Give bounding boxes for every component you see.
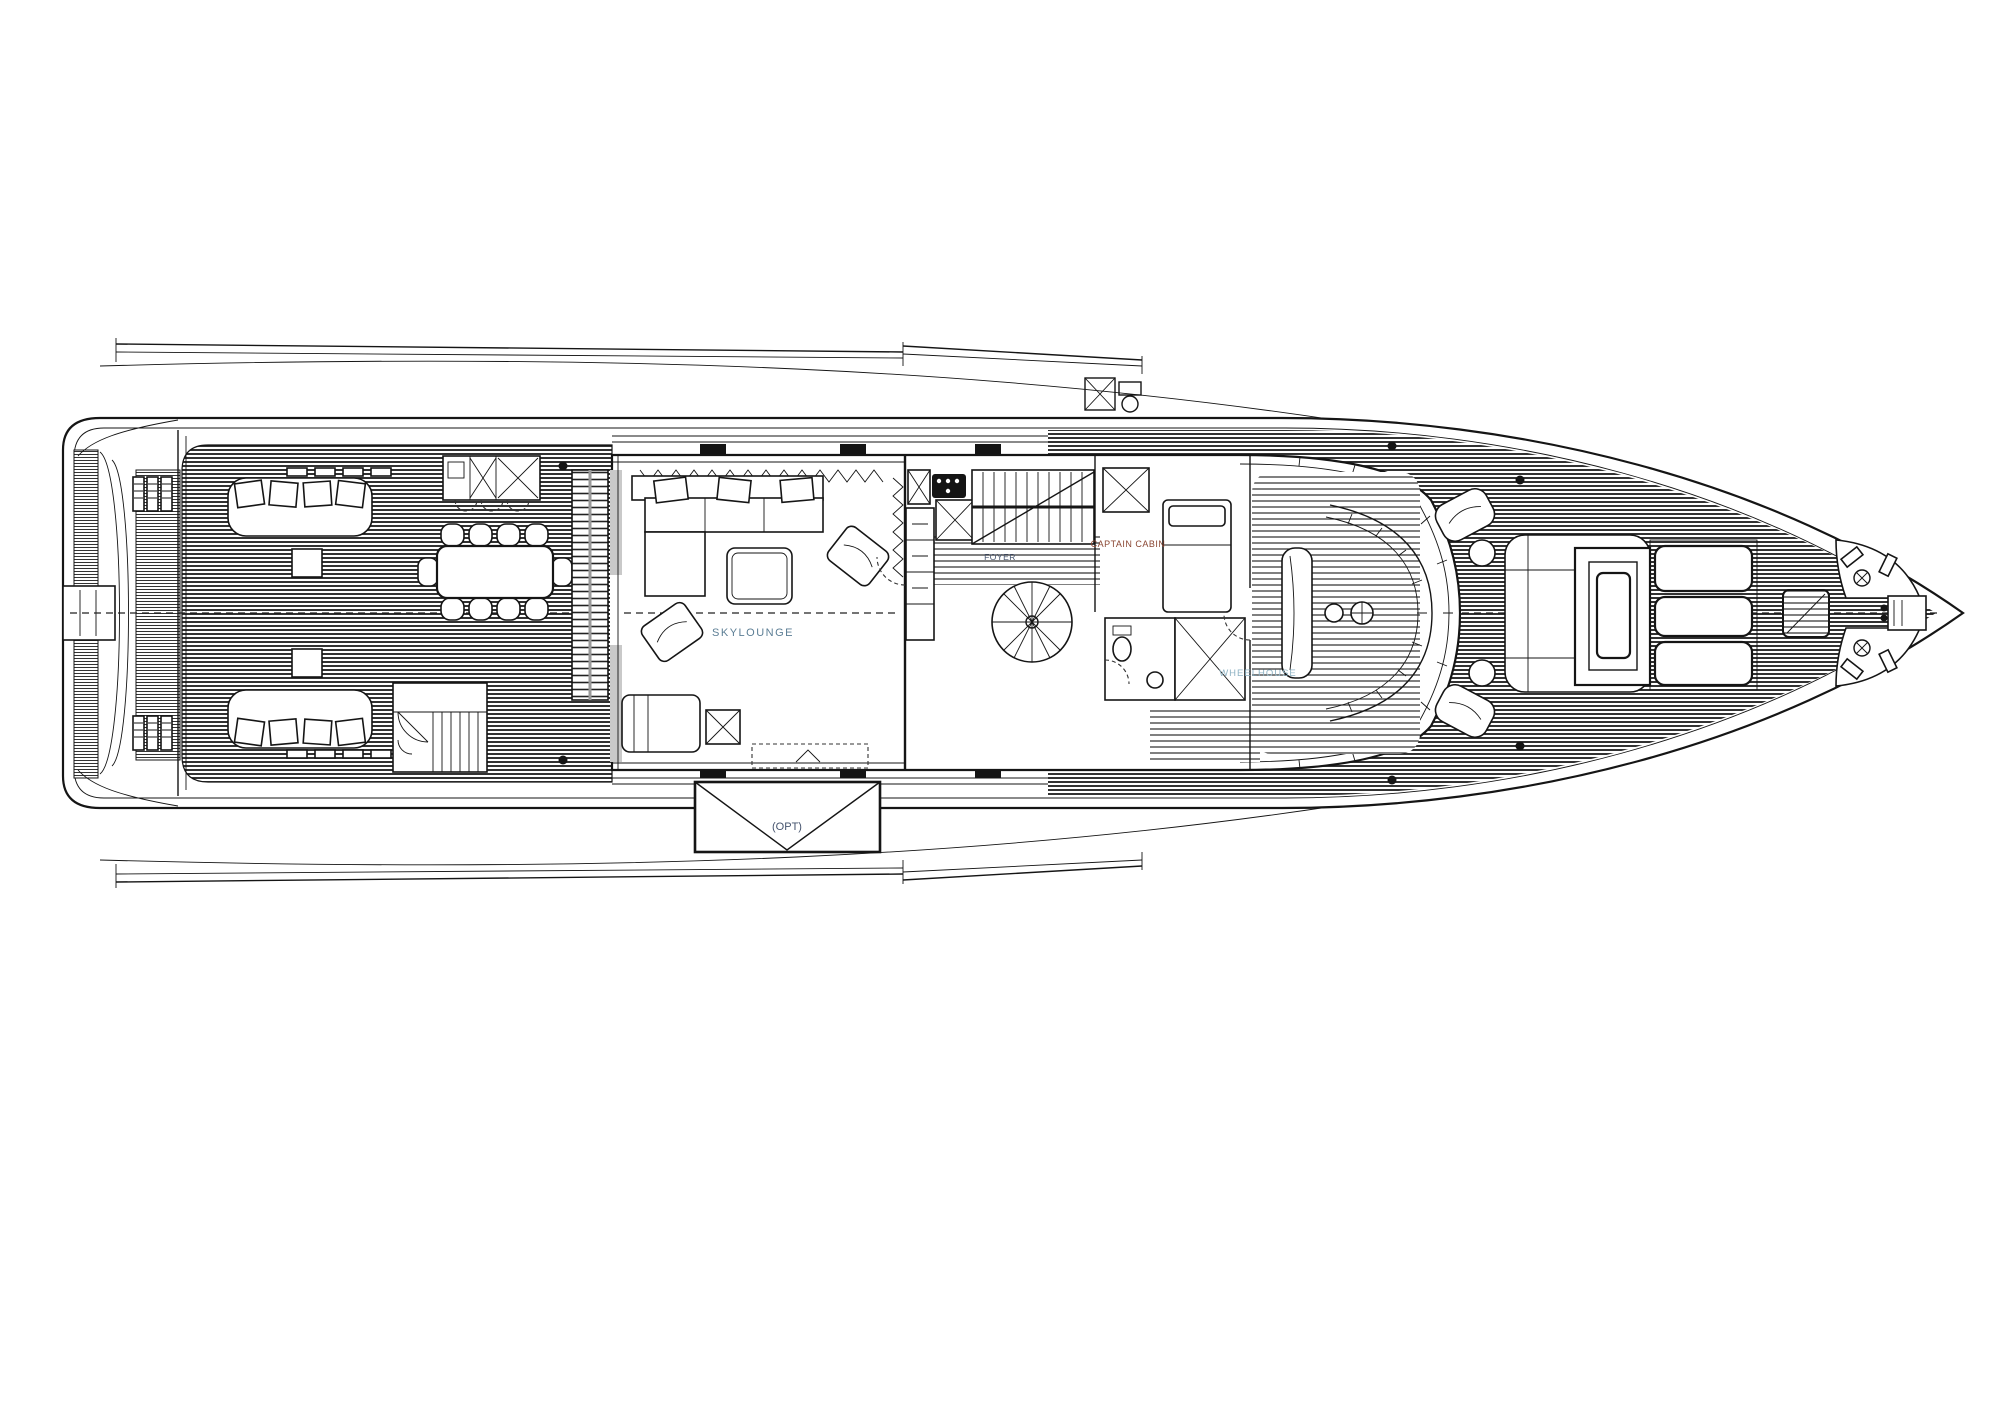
foredeck-sunpads <box>1650 540 1757 690</box>
pantry-cabinets <box>906 508 934 640</box>
cleat-dot <box>559 462 568 471</box>
dining-chair <box>552 558 572 586</box>
stern-seating-bottom <box>228 690 372 748</box>
stern-side-table-bottom <box>292 649 322 677</box>
stern-side-table-top <box>292 549 322 577</box>
sundeck-staircase <box>572 470 608 700</box>
yacht-deck-plan-drawing: (OPT) SKYLOUNGE CAPTAIN CABIN FOYER WHEE… <box>0 0 2000 1414</box>
foredeck-seating-table <box>1505 535 1650 692</box>
cleat-dot <box>1516 742 1525 751</box>
staircase-spiral <box>992 582 1072 662</box>
foyer-label: FOYER <box>984 552 1016 562</box>
coffee-station <box>932 474 966 498</box>
captain-bed <box>1163 500 1231 612</box>
mast-structure <box>1085 378 1141 412</box>
cleat-dot <box>1516 476 1525 485</box>
foredeck-stool-top <box>1469 540 1495 566</box>
optional-platform-label: (OPT) <box>772 821 802 833</box>
cleat-dot <box>1388 442 1397 451</box>
cleat-dot <box>1388 776 1397 785</box>
aft-deck-staircase-down <box>393 683 487 772</box>
cleat-dot <box>559 756 568 765</box>
staircase-up <box>972 470 1094 544</box>
skylounge-coffee-table <box>727 548 792 604</box>
aft-glass-door-opening <box>610 575 622 645</box>
wheelhouse-label: WHEELHOUSE <box>1219 668 1297 679</box>
wheelhouse-side-passage-planking <box>1150 706 1260 762</box>
skylounge-label: SKYLOUNGE <box>712 627 794 639</box>
helm-seat <box>1325 604 1343 622</box>
foredeck-hatch <box>1783 590 1829 637</box>
deck-plan-canvas: (OPT) SKYLOUNGE CAPTAIN CABIN FOYER WHEE… <box>0 0 2000 1414</box>
captain-cabin-label: CAPTAIN CABIN <box>1091 539 1166 549</box>
dining-chair <box>418 558 438 586</box>
dining-table <box>437 546 553 598</box>
captain-ensuite <box>1105 618 1245 700</box>
foredeck-stool-bottom <box>1469 660 1495 686</box>
captain-wardrobe <box>1103 468 1149 512</box>
optional-platform-extension: (OPT) <box>695 782 880 852</box>
helm-bench <box>1282 548 1312 678</box>
stern-seating-top <box>228 478 372 536</box>
